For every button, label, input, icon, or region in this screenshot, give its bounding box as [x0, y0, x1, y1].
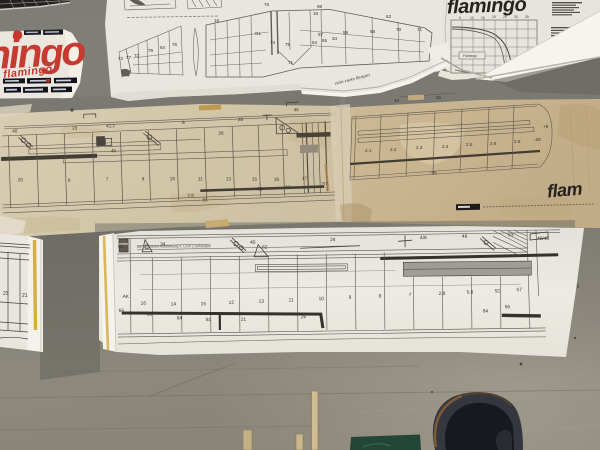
svg-text:10: 10	[470, 16, 474, 20]
svg-text:flam: flam	[546, 179, 583, 202]
svg-text:53: 53	[508, 232, 514, 238]
svg-text:20: 20	[492, 15, 496, 19]
svg-text:16: 16	[141, 301, 147, 307]
svg-text:58: 58	[343, 30, 349, 35]
svg-text:+8: +8	[543, 124, 549, 129]
svg-text:48: 48	[462, 234, 468, 240]
svg-text:2.8: 2.8	[439, 291, 446, 297]
svg-text:13: 13	[226, 176, 232, 181]
svg-text:73: 73	[134, 53, 140, 58]
svg-text:52: 52	[495, 288, 501, 294]
svg-text:9: 9	[349, 295, 352, 301]
svg-text:70: 70	[396, 27, 402, 32]
svg-text:15: 15	[252, 176, 258, 181]
svg-text:40: 40	[250, 240, 256, 246]
svg-text:18: 18	[394, 98, 400, 103]
svg-text:2.4: 2.4	[442, 144, 449, 149]
svg-text:21: 21	[22, 293, 28, 299]
svg-text:8: 8	[379, 293, 382, 299]
svg-text:84: 84	[177, 315, 183, 321]
svg-text:81: 81	[203, 197, 209, 202]
svg-text:68: 68	[370, 29, 376, 34]
svg-text:72: 72	[118, 56, 124, 61]
svg-text:13: 13	[259, 299, 265, 305]
svg-text:AK: AK	[123, 294, 130, 300]
svg-text:71: 71	[417, 27, 423, 32]
svg-text:28: 28	[238, 117, 244, 122]
svg-text:30: 30	[514, 15, 518, 19]
svg-text:71: 71	[288, 60, 294, 65]
svg-text:ST: ST	[322, 181, 328, 186]
svg-text:24: 24	[330, 237, 336, 243]
svg-text:11: 11	[289, 297, 294, 303]
svg-text:35: 35	[525, 15, 529, 19]
svg-text:17: 17	[302, 176, 308, 181]
svg-text:80: 80	[257, 186, 263, 191]
svg-text:81: 81	[206, 317, 212, 323]
svg-text:36: 36	[436, 95, 442, 100]
svg-text:14: 14	[171, 301, 177, 307]
svg-text:77: 77	[126, 55, 132, 60]
svg-text:14: 14	[285, 184, 291, 189]
svg-text:2.2: 2.2	[390, 147, 397, 152]
svg-text:26: 26	[218, 131, 224, 136]
svg-text:41.2: 41.2	[106, 123, 116, 128]
svg-text:bei grosseren Ausstellung n. L: bei grosseren Ausstellung n. Loch 2 anha…	[137, 244, 211, 249]
svg-text:64: 64	[160, 45, 166, 50]
svg-text:2.1: 2.1	[365, 148, 372, 153]
svg-text:-28: -28	[534, 137, 541, 142]
svg-text:23: 23	[3, 291, 9, 297]
svg-text:2.8: 2.8	[187, 193, 194, 198]
svg-text:15: 15	[481, 16, 485, 20]
svg-text:16: 16	[214, 18, 220, 23]
svg-text:OL: OL	[255, 31, 262, 36]
svg-text:75: 75	[285, 42, 291, 47]
svg-text:15: 15	[201, 301, 207, 307]
svg-text:76: 76	[172, 42, 178, 47]
svg-text:57: 57	[318, 32, 324, 37]
svg-text:18: 18	[313, 11, 319, 16]
svg-text:63: 63	[386, 14, 392, 19]
svg-text:10: 10	[170, 176, 176, 181]
svg-text:2.5: 2.5	[466, 142, 473, 147]
svg-text:60: 60	[118, 244, 124, 250]
svg-text:79: 79	[148, 48, 154, 53]
svg-text:12: 12	[229, 300, 235, 306]
svg-text:26: 26	[301, 314, 307, 320]
svg-text:60: 60	[147, 312, 153, 318]
svg-text:2.3: 2.3	[416, 145, 423, 150]
svg-text:45: 45	[111, 148, 117, 153]
svg-text:40/48: 40/48	[537, 236, 549, 242]
svg-text:40: 40	[12, 128, 18, 133]
svg-text:64: 64	[483, 308, 489, 314]
svg-text:20: 20	[18, 177, 24, 182]
svg-text:3: 3	[576, 284, 579, 290]
svg-text:25: 25	[503, 15, 507, 19]
svg-text:74: 74	[270, 40, 276, 45]
svg-text:-35: -35	[430, 170, 437, 175]
svg-text:Flamingo: Flamingo	[463, 54, 477, 58]
svg-text:34: 34	[332, 36, 338, 41]
svg-text:23: 23	[72, 125, 78, 130]
svg-text:62: 62	[262, 245, 268, 251]
svg-text:66: 66	[119, 308, 125, 314]
svg-text:65: 65	[322, 38, 328, 43]
svg-text:76: 76	[264, 2, 270, 7]
svg-text:57: 57	[517, 287, 523, 293]
svg-text:16: 16	[274, 177, 280, 182]
svg-text:11: 11	[198, 176, 203, 181]
svg-text:64: 64	[312, 40, 318, 45]
svg-text:21: 21	[241, 317, 247, 323]
svg-text:4/8: 4/8	[420, 235, 427, 241]
svg-text:7: 7	[409, 292, 412, 298]
svg-text:56: 56	[505, 304, 511, 310]
svg-text:5.8: 5.8	[467, 290, 474, 296]
svg-text:98: 98	[317, 4, 323, 9]
svg-text:10: 10	[319, 296, 325, 302]
svg-text:2.6: 2.6	[490, 141, 497, 146]
svg-text:2.8: 2.8	[514, 139, 521, 144]
svg-text:45: 45	[294, 107, 300, 112]
svg-text:5: 5	[459, 16, 461, 20]
